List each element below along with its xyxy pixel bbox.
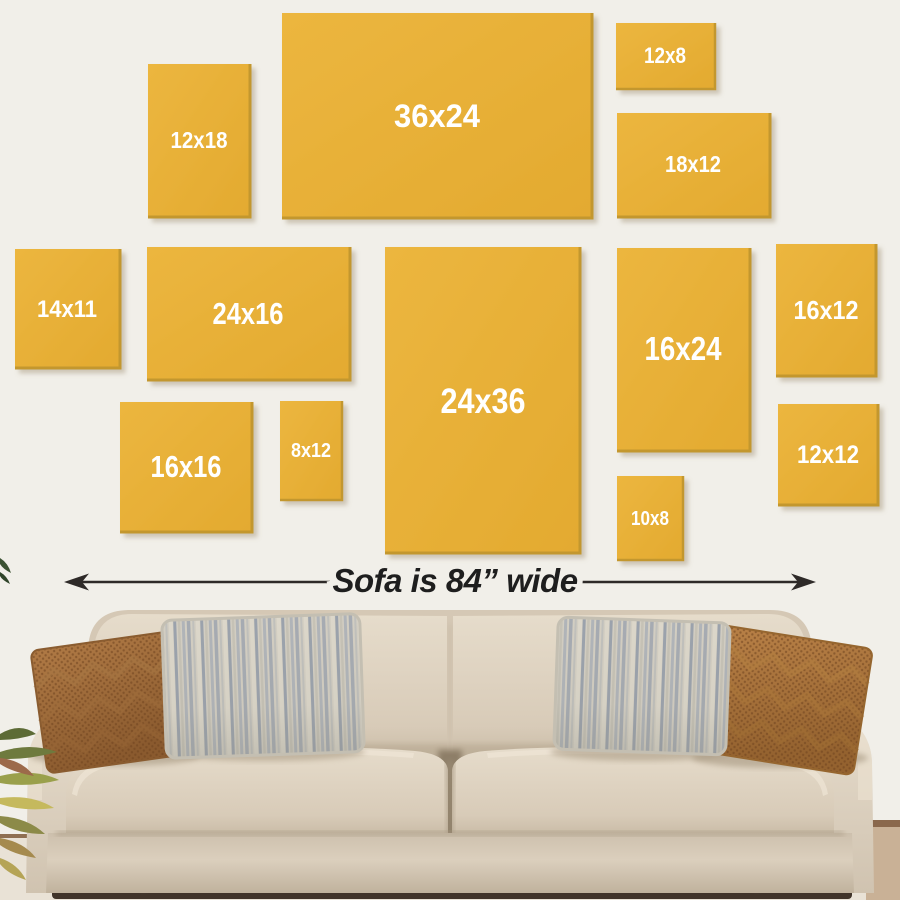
- svg-text:12x18: 12x18: [171, 127, 228, 153]
- svg-text:24x16: 24x16: [213, 296, 284, 331]
- svg-text:16x16: 16x16: [151, 449, 222, 484]
- svg-text:Sofa is 84” wide: Sofa is 84” wide: [332, 562, 577, 599]
- svg-text:36x24: 36x24: [394, 98, 480, 134]
- svg-text:12x12: 12x12: [797, 441, 859, 469]
- svg-text:14x11: 14x11: [37, 296, 97, 323]
- svg-text:24x36: 24x36: [441, 382, 526, 421]
- svg-text:16x24: 16x24: [645, 330, 723, 367]
- svg-text:10x8: 10x8: [631, 508, 669, 530]
- svg-text:8x12: 8x12: [291, 440, 331, 462]
- svg-text:16x12: 16x12: [794, 295, 859, 325]
- svg-text:12x8: 12x8: [644, 43, 686, 68]
- svg-text:18x12: 18x12: [665, 151, 721, 177]
